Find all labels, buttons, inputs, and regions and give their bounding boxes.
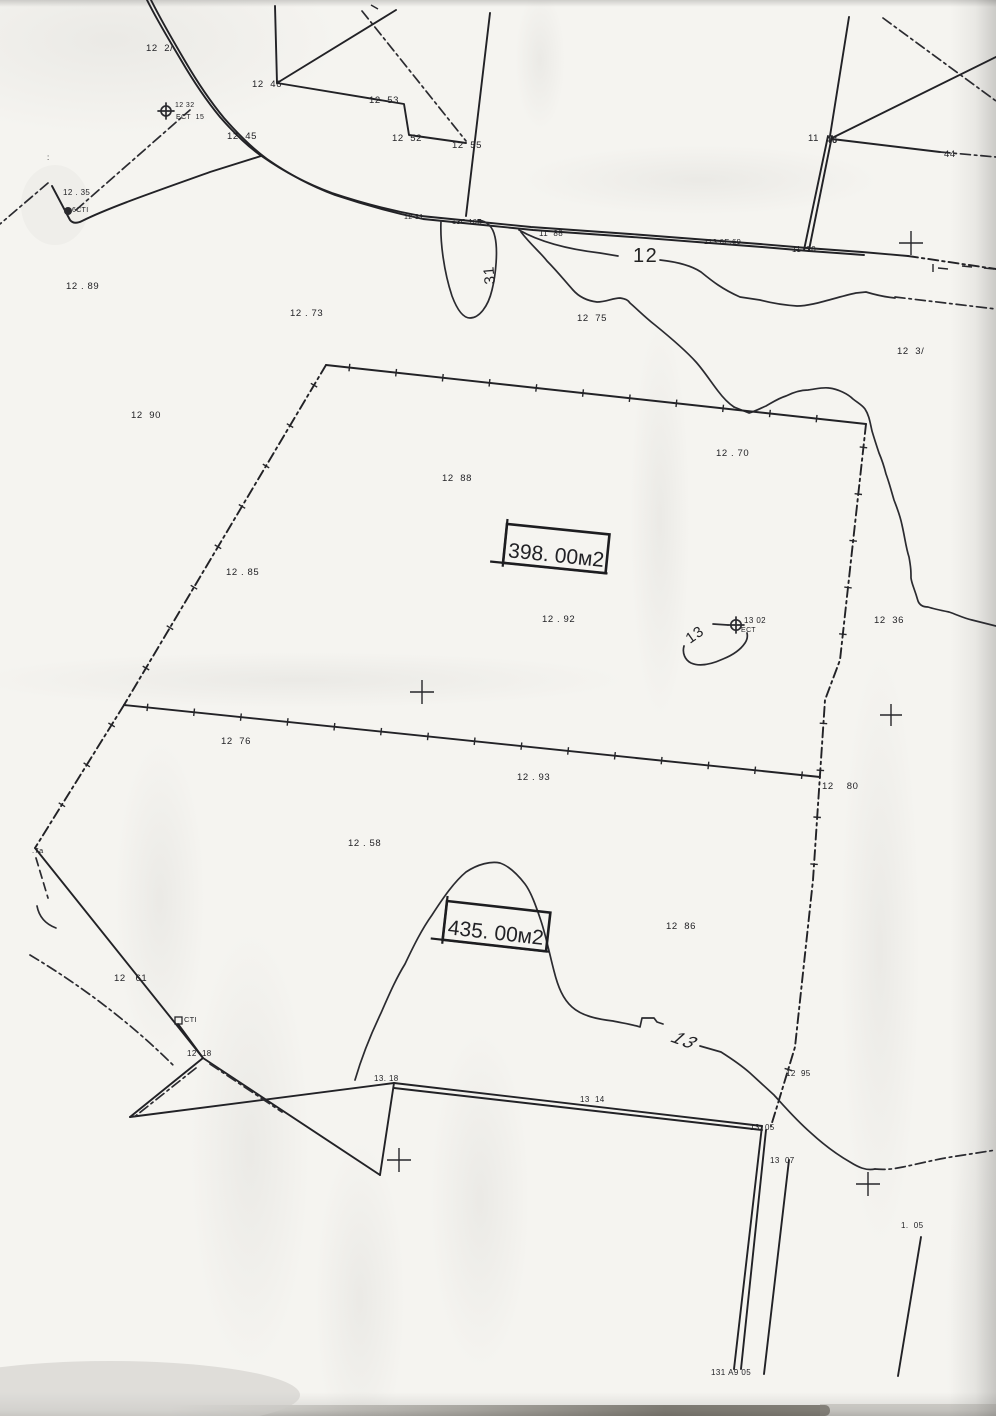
svg-text:13 07: 13 07 <box>770 1156 795 1165</box>
svg-text:12 52: 12 52 <box>392 133 422 144</box>
svg-text:12 36: 12 36 <box>874 615 904 626</box>
svg-text:СТІ: СТІ <box>184 1015 197 1024</box>
svg-text:12 80: 12 80 <box>822 781 859 792</box>
svg-text:13. 18: 13. 18 <box>374 1074 399 1083</box>
svg-text:1ЗС 10Б: 1ЗС 10Б <box>452 219 482 226</box>
svg-text:12 . 70: 12 . 70 <box>716 448 749 459</box>
svg-text:44: 44 <box>944 149 956 160</box>
svg-text:12 76: 12 76 <box>221 736 251 747</box>
svg-text:12 . 73: 12 . 73 <box>290 308 323 319</box>
svg-text:11 88: 11 88 <box>539 229 563 238</box>
svg-text:12 32: 12 32 <box>175 102 195 109</box>
svg-text:12 . 35: 12 . 35 <box>63 188 90 197</box>
svg-text:12 55: 12 55 <box>452 140 482 151</box>
svg-text:ЕСТ 15: ЕСТ 15 <box>176 114 204 121</box>
svg-text:1. 05: 1. 05 <box>901 1221 924 1230</box>
svg-text:12 31: 12 31 <box>404 214 424 221</box>
svg-text:11: 11 <box>808 133 819 144</box>
svg-text:12: 12 <box>633 245 658 267</box>
svg-text:12 88: 12 88 <box>442 473 472 484</box>
svg-text:12 75: 12 75 <box>577 313 607 324</box>
svg-text:12 95: 12 95 <box>786 1069 811 1078</box>
svg-text:12 46: 12 46 <box>252 79 282 90</box>
svg-text:.7а: .7а <box>32 846 44 855</box>
svg-text:6СТІ: 6СТІ <box>72 207 89 214</box>
svg-text:113 6Е.69: 113 6Е.69 <box>704 237 741 246</box>
svg-text:131 А9 05: 131 А9 05 <box>711 1368 751 1377</box>
svg-text:12 . 85: 12 . 85 <box>226 567 259 578</box>
svg-text:12 3/: 12 3/ <box>897 346 924 357</box>
svg-text:12 2/: 12 2/ <box>146 43 173 54</box>
svg-text::: : <box>47 153 50 162</box>
svg-text:12 . 92: 12 . 92 <box>542 614 575 625</box>
svg-text:13 02: 13 02 <box>744 616 766 625</box>
svg-text:12 . 89: 12 . 89 <box>66 281 99 292</box>
svg-text:12 90: 12 90 <box>131 410 161 421</box>
svg-text:12 18: 12 18 <box>187 1049 212 1058</box>
svg-text:11 70: 11 70 <box>792 245 816 254</box>
svg-text:12 86: 12 86 <box>666 921 696 932</box>
svg-text:12 . 58: 12 . 58 <box>348 838 381 849</box>
svg-text:13 05: 13 05 <box>750 1123 775 1132</box>
svg-text:31: 31 <box>480 265 499 285</box>
svg-text:13 14: 13 14 <box>580 1095 605 1104</box>
svg-text:12 . 93: 12 . 93 <box>517 772 550 783</box>
svg-text:46: 46 <box>826 135 838 146</box>
svg-text:12 53: 12 53 <box>369 95 399 106</box>
svg-text:12 45: 12 45 <box>227 131 257 142</box>
svg-text:ЕСТ: ЕСТ <box>741 627 756 634</box>
svg-text:12 61: 12 61 <box>114 973 147 984</box>
